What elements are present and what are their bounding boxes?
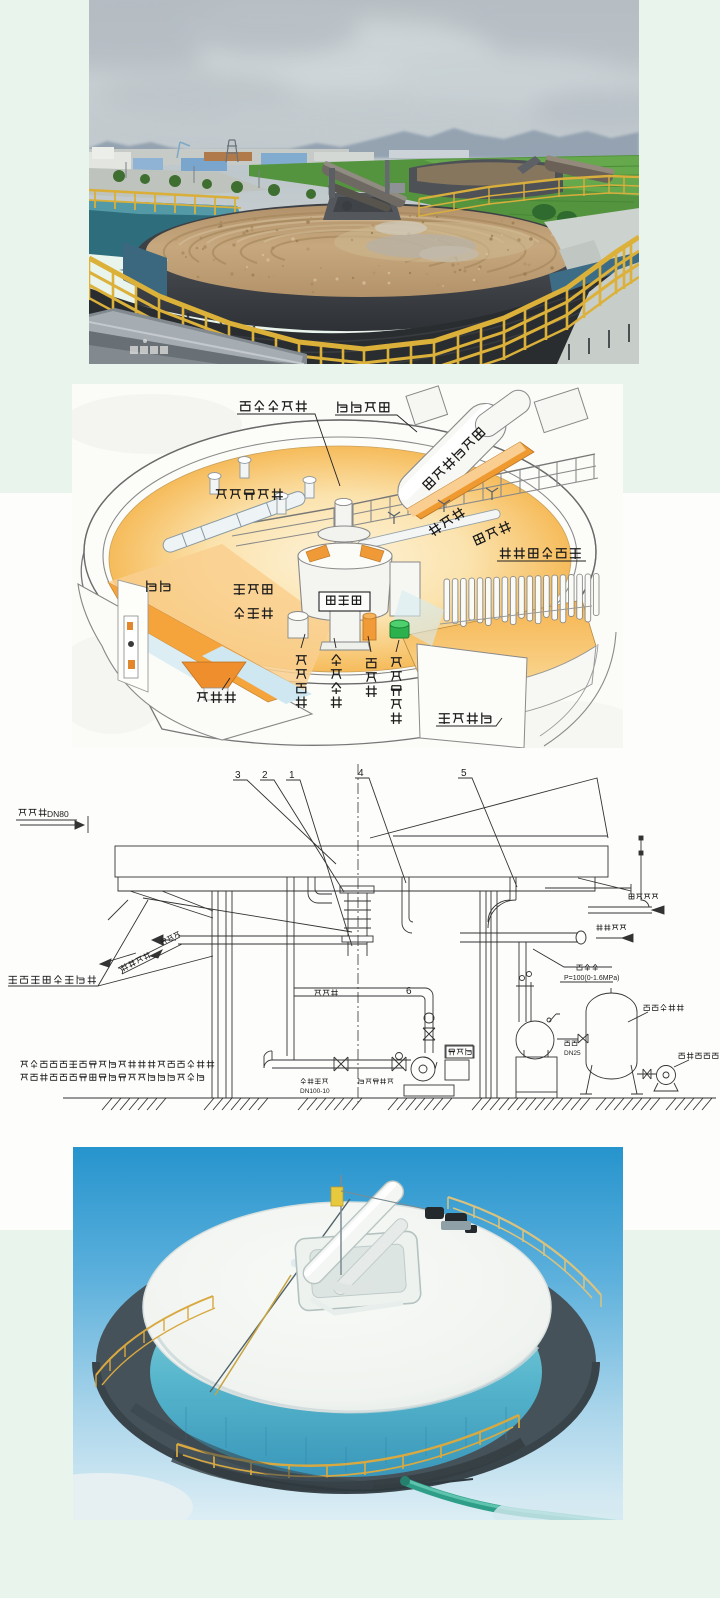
svg-text:5: 5 bbox=[461, 768, 467, 779]
svg-text:6: 6 bbox=[406, 986, 412, 997]
svg-text:DN25: DN25 bbox=[564, 1050, 581, 1057]
svg-text:2: 2 bbox=[262, 770, 268, 781]
svg-text:DN100-10: DN100-10 bbox=[300, 1088, 330, 1095]
svg-text:3: 3 bbox=[235, 770, 241, 781]
svg-text:1: 1 bbox=[289, 770, 295, 781]
svg-text:DN80: DN80 bbox=[47, 809, 69, 819]
svg-text:P=100(0-1.6MPa): P=100(0-1.6MPa) bbox=[564, 975, 619, 982]
svg-text:4: 4 bbox=[358, 768, 364, 779]
